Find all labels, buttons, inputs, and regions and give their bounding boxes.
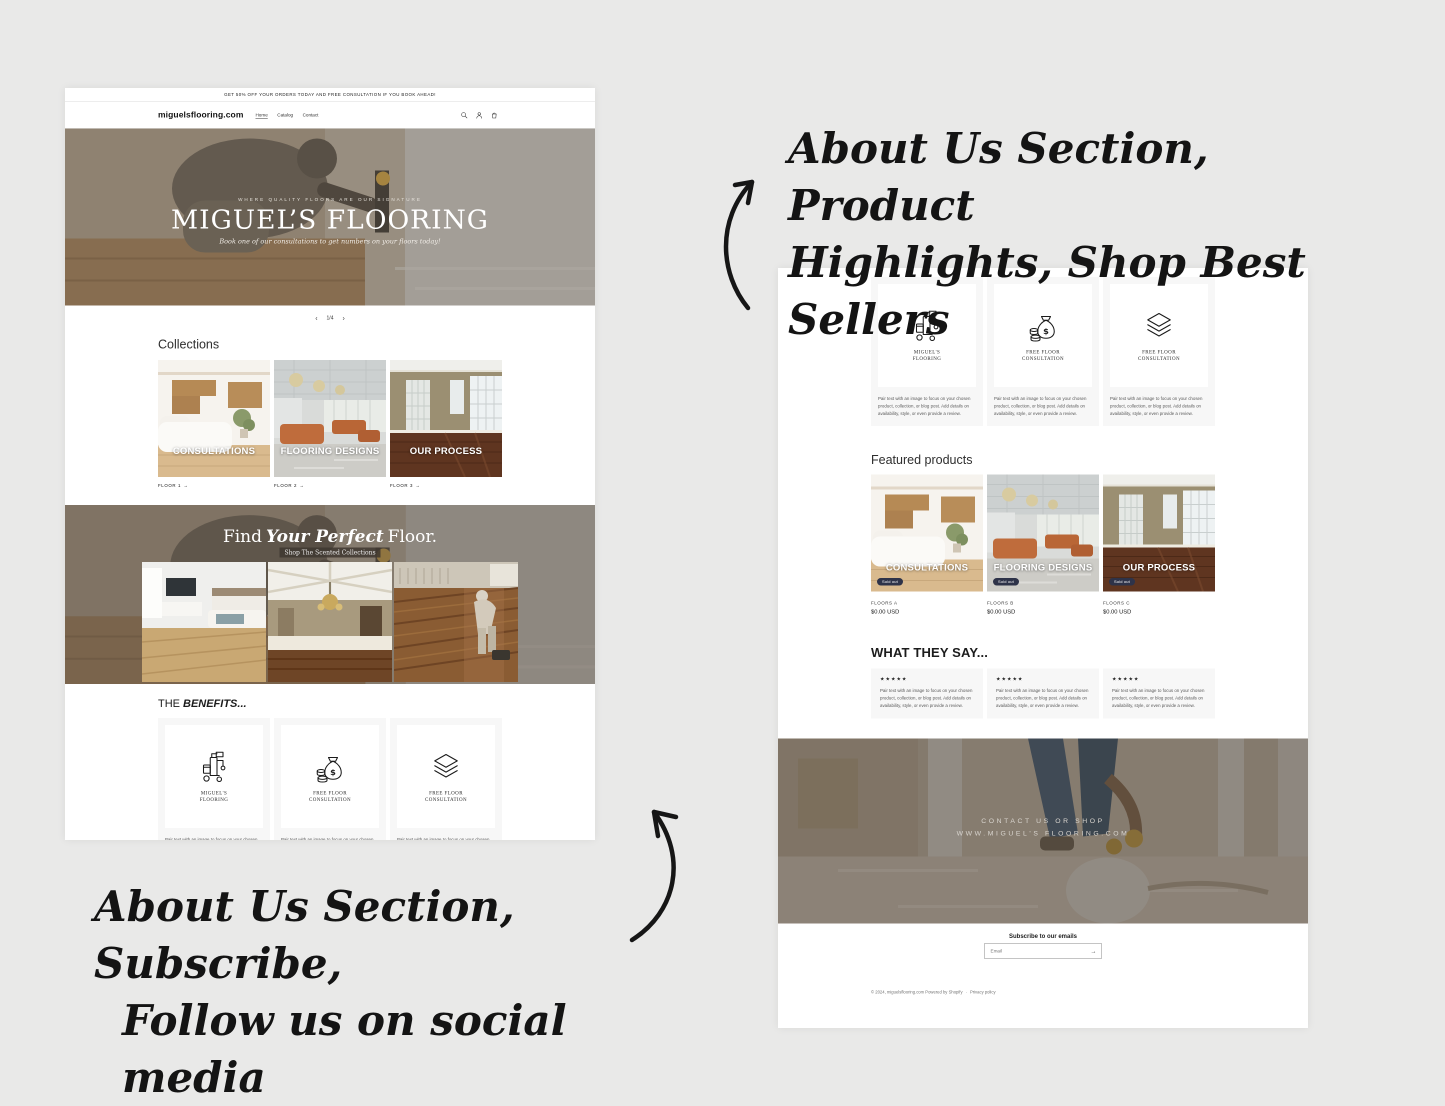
email-input[interactable] bbox=[990, 948, 1091, 954]
find-floor-banner: FindYour PerfectFloor. Shop The Scented … bbox=[65, 505, 595, 684]
cleaning-machine-icon bbox=[196, 750, 232, 786]
product-card: FLOORING DESIGNS Sold out FLOORS B $0.00… bbox=[987, 474, 1099, 615]
product-caption: FLOORING DESIGNS bbox=[987, 562, 1099, 573]
collection-caption: OUR PROCESS bbox=[390, 446, 502, 457]
benefit-text: Pair text with an image to focus on your… bbox=[397, 836, 495, 840]
collection-caption: CONSULTATIONS bbox=[158, 446, 270, 457]
testimonial-card: ★★★★★ Pair text with an image to focus o… bbox=[987, 668, 1099, 718]
floor-layers-icon bbox=[428, 750, 464, 786]
search-icon[interactable] bbox=[461, 111, 469, 119]
sold-out-badge: Sold out bbox=[877, 578, 903, 586]
benefit-card: FREE FLOORCONSULTATION Pair text with an… bbox=[274, 718, 386, 840]
testimonial-card: ★★★★★ Pair text with an image to focus o… bbox=[1103, 668, 1215, 718]
testimonials-section: WHAT THEY SAY... ★★★★★ Pair text with an… bbox=[778, 645, 1308, 719]
banner-subtitle: Shop The Scented Collections bbox=[65, 548, 595, 557]
benefit-text: Pair text with an image to focus on your… bbox=[878, 395, 976, 418]
collection-caption: FLOORING DESIGNS bbox=[274, 446, 386, 457]
product-card: CONSULTATIONS Sold out FLOORS A $0.00 US… bbox=[871, 474, 983, 615]
benefits-heading: THEBENEFITS... bbox=[158, 697, 502, 710]
consultations-photo bbox=[158, 360, 270, 477]
account-icon[interactable] bbox=[476, 111, 484, 119]
star-rating-icon: ★★★★★ bbox=[996, 676, 1090, 682]
contact-banner-text: CONTACT US OR SHOP WWW.MIGUEL'S FLOORING… bbox=[778, 815, 1308, 840]
prev-slide-arrow[interactable]: ‹ bbox=[315, 314, 317, 322]
annotation-bottom-note: About Us Section, Subscribe, Follow us o… bbox=[94, 878, 654, 1106]
floor-2-link[interactable]: FLOOR 2→ bbox=[274, 483, 386, 488]
product-floors-c[interactable]: OUR PROCESS Sold out bbox=[1103, 474, 1215, 591]
bedroom-photo bbox=[142, 562, 266, 682]
sold-out-badge: Sold out bbox=[993, 578, 1019, 586]
testimonial-card: ★★★★★ Pair text with an image to focus o… bbox=[871, 668, 983, 718]
banner-title: FindYour PerfectFloor. bbox=[65, 527, 595, 546]
hero-banner: WHERE QUALITY FLOORS ARE OUR SIGNATURE M… bbox=[65, 129, 595, 306]
benefit-text: Pair text with an image to focus on your… bbox=[281, 836, 379, 840]
floor-3-link[interactable]: FLOOR 3→ bbox=[390, 483, 502, 488]
banner-photo-strip bbox=[65, 562, 595, 682]
nav-catalog[interactable]: Catalog bbox=[277, 113, 293, 118]
annotation-arrow-bottom bbox=[618, 800, 698, 945]
flooring-designs-photo bbox=[987, 474, 1099, 591]
collections-grid: CONSULTATIONS FLOORING DESIGNS OUR PROCE… bbox=[158, 360, 502, 477]
star-rating-icon: ★★★★★ bbox=[1112, 676, 1206, 682]
slide-counter: 1/4 bbox=[327, 315, 334, 321]
product-price: $0.00 USD bbox=[871, 608, 983, 615]
benefits-section: THEBENEFITS... MIGUEL'SFLOORING Pair tex… bbox=[65, 697, 595, 840]
main-nav: Home Catalog Contact bbox=[255, 113, 318, 118]
right-screenshot: THEBENEFITS... MIGUEL'SFLOORING Pair tex… bbox=[778, 268, 1308, 1028]
collection-card-our-process[interactable]: OUR PROCESS bbox=[390, 360, 502, 477]
privacy-policy-link[interactable]: Privacy policy bbox=[970, 990, 996, 995]
left-screenshot: GET 50% OFF YOUR ORDERS TODAY AND FREE C… bbox=[65, 88, 595, 840]
nav-contact[interactable]: Contact bbox=[303, 113, 319, 118]
testimonial-text: Pair text with an image to focus on your… bbox=[880, 687, 974, 710]
product-price: $0.00 USD bbox=[987, 608, 1099, 615]
submit-arrow-icon[interactable]: → bbox=[1091, 948, 1097, 955]
product-floors-a[interactable]: CONSULTATIONS Sold out bbox=[871, 474, 983, 591]
slideshow-pagination: ‹ 1/4 › bbox=[65, 308, 595, 329]
hero-title: MIGUEL’S FLOORING bbox=[171, 206, 489, 234]
product-name[interactable]: FLOORS A bbox=[871, 600, 983, 605]
benefit-text: Pair text with an image to focus on your… bbox=[1110, 395, 1208, 418]
dining-room-photo bbox=[268, 562, 392, 682]
site-footer: © 2024, miguelsflooring.com Powered by S… bbox=[778, 990, 1308, 995]
annotation-top-note: About Us Section, Product Highlights, Sh… bbox=[788, 120, 1368, 348]
benefit-text: Pair text with an image to focus on your… bbox=[165, 836, 263, 840]
consultations-photo bbox=[871, 474, 983, 591]
product-floors-b[interactable]: FLOORING DESIGNS Sold out bbox=[987, 474, 1099, 591]
our-process-photo bbox=[1103, 474, 1215, 591]
collections-heading: Collections bbox=[158, 338, 502, 353]
site-logo[interactable]: miguelsflooring.com bbox=[158, 110, 243, 120]
collection-card-flooring-designs[interactable]: FLOORING DESIGNS bbox=[274, 360, 386, 477]
announcement-bar: GET 50% OFF YOUR ORDERS TODAY AND FREE C… bbox=[65, 88, 595, 102]
testimonial-text: Pair text with an image to focus on your… bbox=[996, 687, 1090, 710]
contact-banner: CONTACT US OR SHOP WWW.MIGUEL'S FLOORING… bbox=[778, 739, 1308, 924]
product-caption: OUR PROCESS bbox=[1103, 562, 1215, 573]
sold-out-badge: Sold out bbox=[1109, 578, 1135, 586]
benefit-card: FREE FLOORCONSULTATION Pair text with an… bbox=[390, 718, 502, 840]
collection-card-consultations[interactable]: CONSULTATIONS bbox=[158, 360, 270, 477]
footer-divider: · bbox=[966, 990, 967, 995]
benefit-text: Pair text with an image to focus on your… bbox=[994, 395, 1092, 418]
hero-eyebrow: WHERE QUALITY FLOORS ARE OUR SIGNATURE bbox=[238, 197, 422, 202]
star-rating-icon: ★★★★★ bbox=[880, 676, 974, 682]
next-slide-arrow[interactable]: › bbox=[342, 314, 344, 322]
copyright-text: © 2024, miguelsflooring.com Powered by S… bbox=[871, 990, 963, 995]
link-arrow-icon: → bbox=[184, 483, 189, 488]
newsletter-section: Subscribe to our emails → bbox=[778, 933, 1308, 959]
flooring-designs-photo bbox=[274, 360, 386, 477]
our-process-photo bbox=[390, 360, 502, 477]
subscribe-heading: Subscribe to our emails bbox=[778, 933, 1308, 940]
cart-icon[interactable] bbox=[491, 111, 499, 119]
floor-polish-photo bbox=[394, 562, 518, 682]
featured-products-section: Featured products CONSULTATIONS Sold out… bbox=[778, 453, 1308, 615]
benefit-card: MIGUEL'SFLOORING Pair text with an image… bbox=[158, 718, 270, 840]
product-caption: CONSULTATIONS bbox=[871, 562, 983, 573]
product-card: OUR PROCESS Sold out FLOORS C $0.00 USD bbox=[1103, 474, 1215, 615]
link-arrow-icon: → bbox=[416, 483, 421, 488]
email-signup: → bbox=[984, 944, 1102, 959]
floor-1-link[interactable]: FLOOR 1→ bbox=[158, 483, 270, 488]
product-name[interactable]: FLOORS B bbox=[987, 600, 1099, 605]
hero-subtitle: Book one of our consultations to get num… bbox=[219, 238, 440, 246]
money-bag-icon bbox=[312, 750, 348, 786]
featured-products-heading: Featured products bbox=[871, 453, 1215, 468]
site-header: miguelsflooring.com Home Catalog Contact bbox=[65, 102, 595, 129]
product-name[interactable]: FLOORS C bbox=[1103, 600, 1215, 605]
product-price: $0.00 USD bbox=[1103, 608, 1215, 615]
collection-links: FLOOR 1→ FLOOR 2→ FLOOR 3→ bbox=[158, 483, 502, 488]
testimonial-text: Pair text with an image to focus on your… bbox=[1112, 687, 1206, 710]
nav-home[interactable]: Home bbox=[255, 113, 267, 118]
link-arrow-icon: → bbox=[300, 483, 305, 488]
annotation-arrow-top bbox=[712, 162, 782, 312]
testimonials-heading: WHAT THEY SAY... bbox=[871, 645, 1215, 661]
